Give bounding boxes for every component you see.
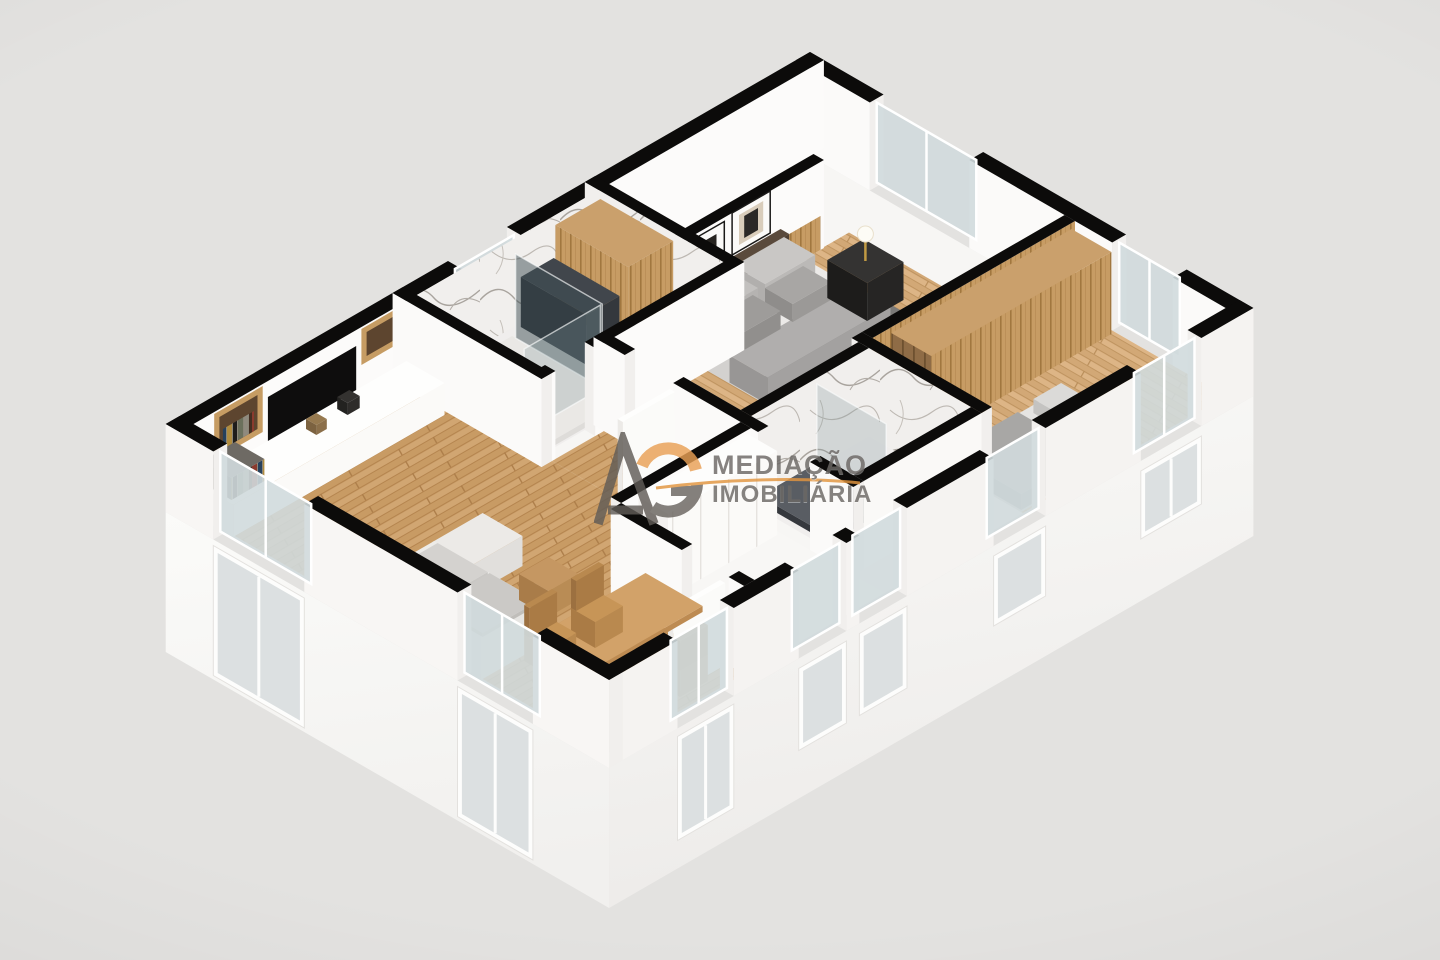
floorplan-3d-svg [0,0,1440,960]
floorplan-render: MEDIAÇÃO IMOBILIÁRIA [0,0,1440,960]
